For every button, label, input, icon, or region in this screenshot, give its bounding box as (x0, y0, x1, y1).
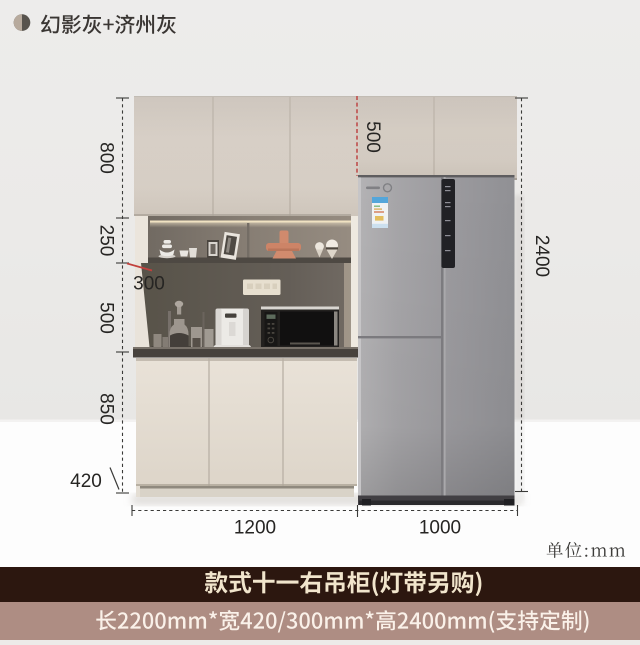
svg-text:300: 300 (133, 274, 165, 295)
svg-text:250: 250 (95, 225, 116, 257)
svg-text:1000: 1000 (419, 518, 461, 539)
svg-text:800: 800 (95, 142, 116, 174)
svg-text:850: 850 (95, 393, 116, 425)
svg-text:1200: 1200 (234, 518, 276, 539)
svg-text:2400: 2400 (531, 235, 552, 277)
svg-text:500: 500 (362, 121, 383, 153)
svg-text:420: 420 (70, 471, 102, 492)
svg-text:500: 500 (95, 302, 116, 334)
